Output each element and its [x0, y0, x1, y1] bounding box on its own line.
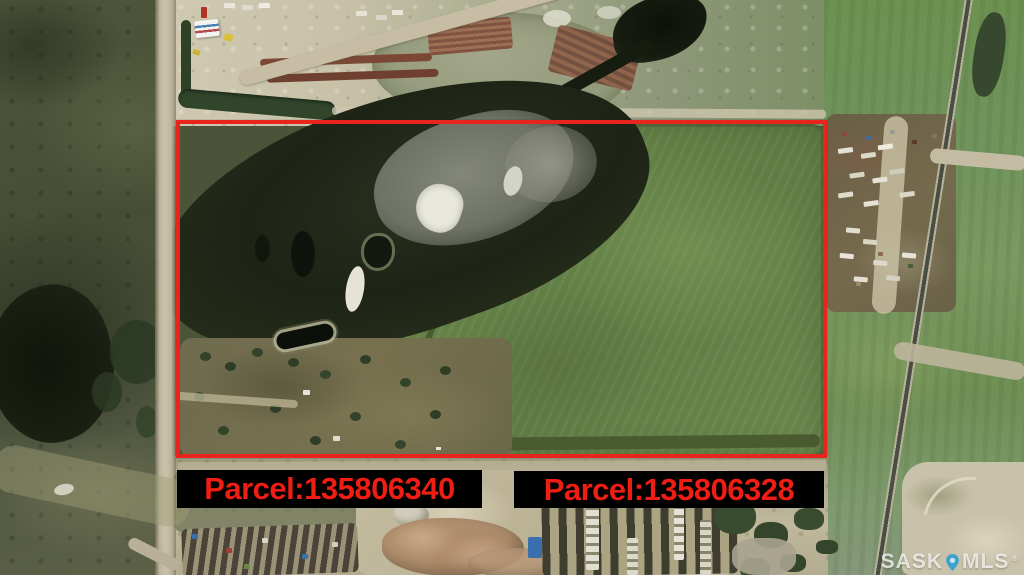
truck-row-3 [674, 504, 684, 560]
gravel-patch-south [732, 538, 796, 575]
scattered-equipment [842, 132, 847, 136]
truck-row-4 [700, 520, 711, 575]
sask-mls-watermark: SASK MLS ® [881, 550, 1018, 574]
parcel-label-2-text: Parcel:135806328 [544, 472, 795, 508]
truck-row-1 [586, 506, 599, 570]
vehicle-color-specks [192, 534, 198, 539]
watermark-registered: ® [1011, 553, 1018, 563]
parked-vehicles-north [224, 3, 235, 8]
mls-pin-icon [946, 554, 959, 571]
blue-container [528, 537, 542, 558]
satellite-listing-image: Parcel:135806340 Parcel:135806328 SASK M… [0, 0, 1024, 575]
truck-row-2 [627, 538, 638, 575]
parcel-label-2: Parcel:135806328 [514, 471, 824, 508]
watermark-prefix: SASK [881, 550, 943, 574]
parcel-boundary-outline [176, 120, 827, 458]
red-structure [201, 7, 207, 18]
watermark-suffix: MLS [962, 550, 1009, 574]
parcel-label-1: Parcel:135806340 [177, 470, 482, 508]
alkali-patches-north [543, 10, 571, 27]
striped-roof-building [194, 19, 220, 38]
vehicle-rows-southwest [181, 523, 359, 575]
parcel-label-1-text: Parcel:135806340 [204, 471, 455, 507]
